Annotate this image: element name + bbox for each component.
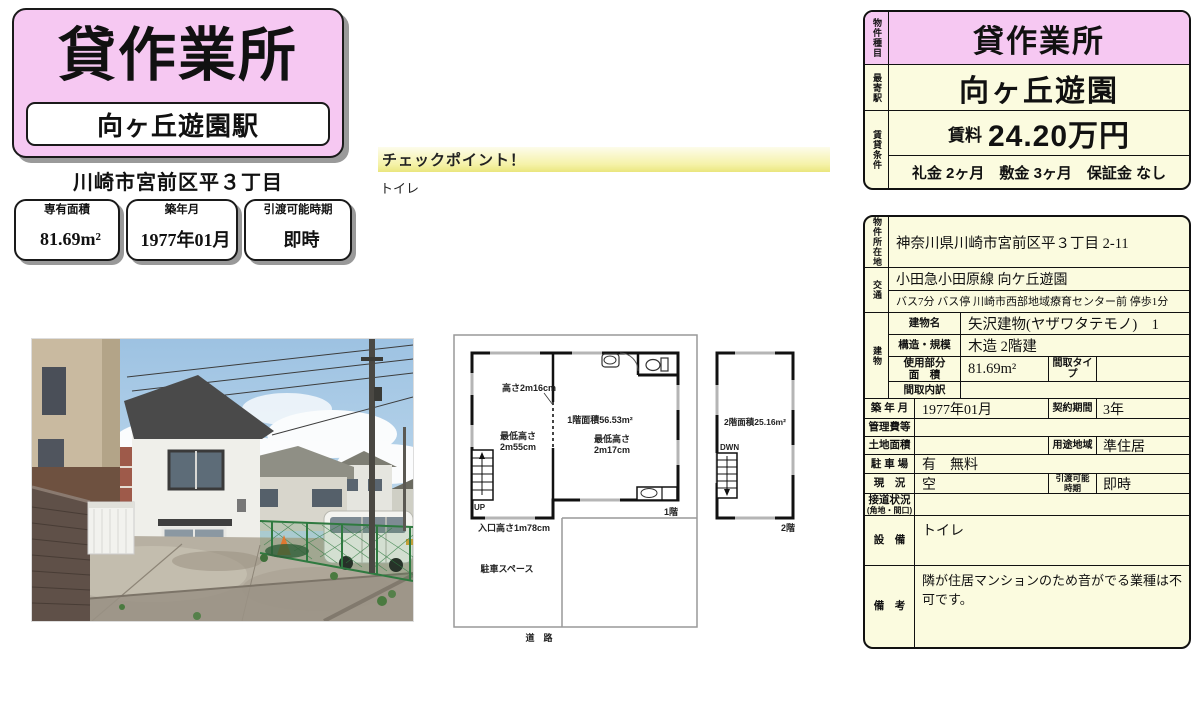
info-label: 築年月 — [165, 201, 200, 217]
station-name-box: 向ヶ丘遊園駅 — [26, 102, 330, 146]
info-label: 専有面積 — [44, 201, 90, 217]
used-area-label: 使用部分 面 積 — [889, 357, 961, 381]
management-fee-label: 管理費等 — [865, 419, 915, 436]
structure-label: 構造・規模 — [889, 335, 961, 356]
title-card: 貸作業所 向ヶ丘遊園駅 — [12, 8, 344, 158]
summary-type-value: 貸作業所 — [889, 12, 1189, 64]
checkpoint-title: チェックポイント！ — [378, 147, 830, 172]
address-line: 川崎市宮前区平３丁目 — [12, 166, 344, 195]
building-name-label: 建物名 — [889, 313, 961, 334]
transport-label: 交通 — [865, 268, 889, 312]
remarks-label: 備 考 — [865, 566, 915, 647]
layout-type-value — [1097, 357, 1189, 381]
summary-card: 物件種目 貸作業所 最寄駅 向ヶ丘遊園 賃貸条件 賃料 24.20万円 礼金 2… — [863, 10, 1191, 190]
label-floor1: 1階 — [664, 506, 678, 517]
label-minheight-left: 最低高さ — [500, 430, 536, 441]
summary-station-value: 向ヶ丘遊園 — [889, 65, 1189, 110]
summary-station-label: 最寄駅 — [865, 65, 889, 110]
floor-plan: 高さ2m16cm 1階面積56.53m² 最低高さ 2m55cm 最低高さ 2m… — [440, 325, 840, 665]
property-photo — [32, 339, 413, 621]
road-access-label: 接道状況 (角地・間口) — [865, 494, 915, 515]
location-value: 神奈川県川崎市宮前区平３丁目 2-11 — [889, 217, 1189, 267]
parking-value: 有 無料 — [915, 455, 1189, 473]
info-value: 81.69m² — [33, 219, 101, 259]
rent-value: 24.20万円 — [988, 111, 1130, 155]
rent-line: 賃料 24.20万円 — [889, 111, 1189, 156]
info-value: 1977年01月 — [134, 219, 231, 259]
property-flyer: 貸作業所 向ヶ丘遊園駅 川崎市宮前区平３丁目 専有面積 81.69m² 築年月 … — [0, 0, 1200, 701]
info-box-handover: 引渡可能時期 即時 — [244, 199, 352, 261]
label-down: DWN — [720, 443, 739, 452]
label-minheight-right: 最低高さ — [594, 433, 630, 444]
info-box-area: 専有面積 81.69m² — [14, 199, 120, 261]
label-area-1f: 1階面積56.53m² — [567, 414, 633, 425]
label-road: 道 路 — [525, 632, 553, 643]
label-up: UP — [474, 503, 486, 512]
label-area-2f: 2階面積25.16m² — [724, 417, 786, 427]
info-box-built: 築年月 1977年01月 — [126, 199, 238, 261]
property-type-title: 貸作業所 — [58, 10, 298, 102]
detail-card: 物件所在地 神奈川県川崎市宮前区平３丁目 2-11 交通 小田急小田原線 向ケ丘… — [863, 215, 1191, 649]
used-area-value: 81.69m² — [961, 357, 1048, 381]
built-date-label: 築 年 月 — [865, 399, 915, 418]
svg-text:2m17cm: 2m17cm — [594, 445, 630, 455]
stairs-down — [717, 453, 737, 498]
layout-detail-label: 間取内訳 — [889, 382, 961, 398]
location-label: 物件所在地 — [865, 217, 889, 267]
checkpoint-note: トイレ — [380, 178, 419, 197]
rent-label: 賃料 — [948, 121, 982, 146]
sink-counter — [637, 487, 677, 500]
svg-text:2m55cm: 2m55cm — [500, 442, 536, 452]
transport-line1: 小田急小田原線 向ケ丘遊園 — [889, 268, 1189, 290]
land-area-label: 土地面積 — [865, 437, 915, 454]
transport-line2: バス7分 バス停 川崎市西部地域療育センター前 停歩1分 — [889, 291, 1189, 313]
info-label: 引渡可能時期 — [264, 201, 333, 217]
label-entrance: 入口高さ1m78cm — [477, 522, 550, 533]
terms-line: 礼金 2ヶ月 敷金 3ヶ月 保証金 なし — [889, 156, 1189, 188]
building-label: 建物 — [865, 313, 889, 398]
label-parking-space: 駐車スペース — [481, 563, 534, 574]
equipment-value: トイレ — [915, 516, 1189, 565]
handover-value: 即時 — [1097, 474, 1189, 493]
land-area-value — [915, 437, 1048, 454]
current-status-label: 現 況 — [865, 474, 915, 493]
label-height: 高さ2m16cm — [502, 382, 556, 393]
summary-type-label: 物件種目 — [865, 12, 889, 64]
built-date-value: 1977年01月 — [915, 399, 1048, 418]
equipment-label: 設 備 — [865, 516, 915, 565]
info-value: 即時 — [277, 219, 320, 259]
handover-label: 引渡可能 時期 — [1048, 474, 1097, 493]
building-name-value: 矢沢建物(ヤザワタテモノ) 1 — [961, 313, 1189, 334]
contract-term-value: 3年 — [1097, 399, 1189, 418]
layout-detail-value — [961, 382, 1189, 398]
zoning-value: 準住居 — [1097, 437, 1189, 454]
parking-label: 駐 車 場 — [865, 455, 915, 473]
label-floor2: 2階 — [781, 522, 795, 533]
stairs-up — [472, 450, 493, 500]
remarks-value: 隣が住居マンションのため音がでる業種は不可です。 — [915, 566, 1189, 647]
contract-term-label: 契約期間 — [1048, 399, 1097, 418]
road-access-value — [915, 494, 1189, 515]
zoning-label: 用途地域 — [1048, 437, 1097, 454]
current-status-value: 空 — [915, 474, 1048, 493]
management-fee-value — [915, 419, 1189, 436]
layout-type-label: 間取タイプ — [1048, 357, 1097, 381]
structure-value: 木造 2階建 — [961, 335, 1189, 356]
summary-terms-label: 賃貸条件 — [865, 111, 889, 188]
